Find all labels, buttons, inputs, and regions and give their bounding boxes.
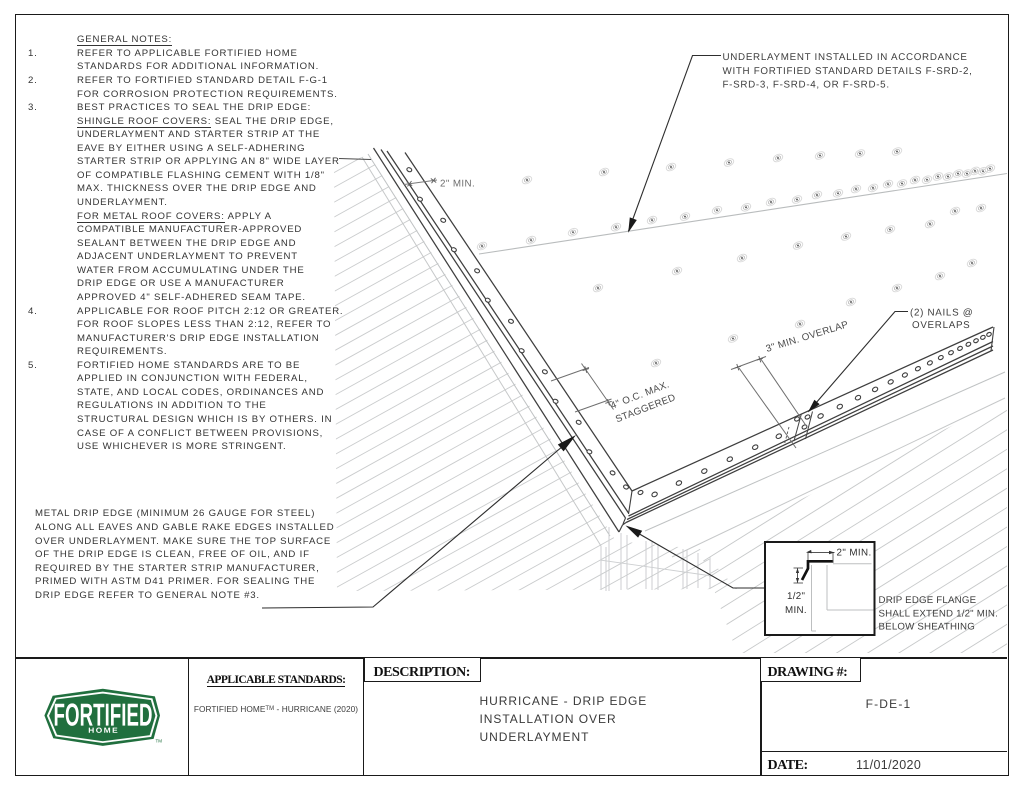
svg-text:TM: TM [156, 739, 163, 744]
svg-text:DRIP EDGE FLANGE: DRIP EDGE FLANGE [879, 595, 977, 606]
svg-text:3" MIN. OVERLAP: 3" MIN. OVERLAP [765, 319, 850, 355]
svg-text:WITH FORTIFIED STANDARD DETAIL: WITH FORTIFIED STANDARD DETAILS F-SRD-2, [723, 66, 973, 77]
svg-text:1/2": 1/2" [787, 591, 806, 602]
svg-text:F-SRD-3, F-SRD-4, OR F-SRD-5.: F-SRD-3, F-SRD-4, OR F-SRD-5. [723, 79, 890, 90]
svg-text:MIN.: MIN. [785, 605, 807, 616]
svg-text:2" MIN.: 2" MIN. [837, 548, 872, 559]
svg-text:BELOW SHEATHING: BELOW SHEATHING [879, 622, 975, 633]
svg-text:SHALL EXTEND 1/2" MIN.: SHALL EXTEND 1/2" MIN. [879, 608, 998, 619]
svg-text:2" MIN.: 2" MIN. [440, 179, 475, 190]
svg-text:(2) NAILS @: (2) NAILS @ [910, 307, 973, 318]
svg-text:OVERLAPS: OVERLAPS [912, 320, 970, 331]
svg-text:UNDERLAYMENT INSTALLED IN ACCO: UNDERLAYMENT INSTALLED IN ACCORDANCE [723, 52, 968, 63]
